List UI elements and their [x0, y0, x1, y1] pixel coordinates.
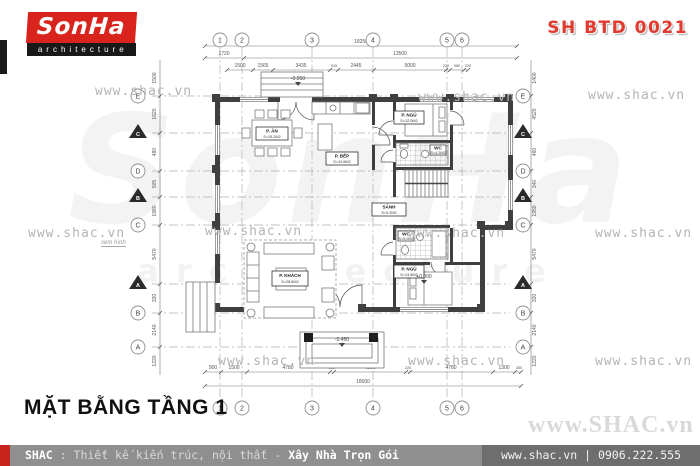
page-title: MẶT BẰNG TẦNG 1: [24, 396, 228, 420]
grid-row-bubble: A: [136, 345, 141, 352]
svg-text:S=12.0M2: S=12.0M2: [400, 119, 417, 123]
dim-top: 980: [454, 64, 460, 68]
room-label-wc-2: WC S=5.0M2: [398, 231, 414, 241]
dim-top-mid: 13500: [393, 51, 407, 57]
dim-left: 1620: [152, 108, 158, 119]
room-label-bedroom-1: P. NGỦ S=12.0M2: [394, 111, 424, 124]
dim-right: 320: [532, 294, 538, 303]
dim-bottom-total: 18000: [356, 379, 370, 385]
sonha-logo-brand: SonHa: [26, 12, 137, 43]
grid-row-bubble: D: [135, 169, 140, 176]
svg-text:P. BẾP: P. BẾP: [335, 153, 349, 159]
dim-right: 4520: [532, 108, 538, 119]
dim-left: 505: [152, 180, 158, 189]
svg-text:WC: WC: [434, 146, 442, 151]
grid-col-bubble: 5: [445, 38, 449, 45]
svg-text:P. ĂN: P. ĂN: [266, 128, 278, 134]
footer-contact: www.shac.vn | 0906.222.555: [482, 445, 700, 466]
grid-col-bubble: 3: [310, 38, 314, 45]
svg-text:S=9.2M2: S=9.2M2: [381, 211, 396, 215]
room-label-living: P. KHÁCH S=28.6M2: [272, 271, 308, 286]
svg-text:P. NGỦ: P. NGỦ: [401, 266, 417, 272]
dim-top: 515: [331, 64, 337, 68]
footer-site: www.shac.vn: [501, 448, 577, 462]
room-label-kitchen: P. BẾP S=12.6M2: [326, 152, 358, 165]
dim-top: 3435: [295, 63, 306, 69]
grid-col-bubble: 6: [460, 406, 464, 413]
sonha-logo: SonHa architecture: [27, 12, 136, 56]
room-label-hall: SẢNH S=9.2M2: [372, 203, 406, 216]
svg-text:C: C: [136, 132, 140, 138]
dim-right: 340: [532, 180, 538, 189]
grid-col-bubble: 2: [240, 406, 244, 413]
grid-col-bubble: 4: [371, 406, 375, 413]
svg-text:S=28.6M2: S=28.6M2: [281, 280, 298, 284]
svg-text:S=13.5M2: S=13.5M2: [400, 273, 417, 277]
grid-col-bubble: 3: [310, 406, 314, 413]
big-watermark: www.SHAC.vn: [528, 412, 694, 439]
svg-text:S=12.6M2: S=12.6M2: [333, 160, 350, 164]
grid-row-bubble: D: [520, 169, 525, 176]
grid-row-bubble: A: [521, 345, 526, 352]
dim-bottom: 1300: [498, 365, 509, 371]
grid-row-bubble: C: [520, 223, 525, 230]
footer-phone: 0906.222.555: [598, 448, 681, 462]
grid-row-bubble: C: [135, 223, 140, 230]
svg-text:WC: WC: [402, 232, 410, 237]
note-text: xem hình: [101, 240, 126, 247]
footer-tagline-text: Thiết kế kiến trúc, nội thất: [74, 448, 268, 462]
drawing-code: SH BTD 0021: [547, 18, 688, 38]
grid-row-bubble: B: [136, 311, 141, 318]
room-label-dining: P. ĂN S=15.2M2: [256, 127, 288, 140]
level-hall: +0.000: [416, 274, 432, 280]
grid-row-bubble: E: [136, 94, 141, 101]
fridge: [356, 103, 369, 113]
kitchen-island: [318, 124, 332, 150]
footer-divider: |: [584, 448, 591, 462]
svg-text:S=5.0M2: S=5.0M2: [398, 237, 413, 241]
dim-left: 320: [152, 294, 158, 303]
dim-top: 1500: [234, 63, 245, 69]
dim-left: 5470: [152, 248, 158, 259]
svg-text:SẢNH: SẢNH: [382, 204, 396, 210]
svg-text:S=4.2M2: S=4.2M2: [430, 151, 445, 155]
dim-top-mid: 1720: [218, 51, 229, 57]
dim-top: 1565: [257, 63, 268, 69]
dim-top: 220: [465, 64, 471, 68]
dim-bottom: 4780: [445, 365, 456, 371]
dim-left: 1980: [152, 205, 158, 216]
dim-bottom: 4780: [282, 365, 293, 371]
svg-text:S=15.2M2: S=15.2M2: [263, 135, 280, 139]
grid-row-bubble: B: [521, 311, 526, 318]
grid-col-bubble: 6: [460, 38, 464, 45]
dim-top: 220: [443, 64, 449, 68]
footer-highlight: Xây Nhà Trọn Gói: [288, 448, 399, 462]
level-entry: -0.050: [291, 76, 305, 82]
svg-text:P. KHÁCH: P. KHÁCH: [279, 272, 301, 278]
svg-text:P. NGỦ: P. NGỦ: [401, 112, 417, 118]
dim-right: 1400: [532, 72, 538, 83]
grid-col-bubble: 4: [371, 38, 375, 45]
grid-col-bubble: 5: [445, 406, 449, 413]
kitchen-counter: [312, 102, 370, 150]
dim-top: 2445: [350, 63, 361, 69]
grid-col-bubble: 2: [240, 38, 244, 45]
footer-colon: :: [60, 448, 67, 462]
room-label-wc-1: WC S=4.2M2: [430, 145, 446, 155]
svg-text:B: B: [521, 196, 525, 202]
dim-right: 460: [532, 148, 538, 157]
dim-bottom: 1500: [228, 365, 239, 371]
footer-brand: SHAC: [25, 448, 53, 462]
dim-left: 1500: [152, 72, 158, 83]
svg-text:B: B: [136, 196, 140, 202]
footer-dash: -: [274, 448, 281, 462]
footer-tagline: SHAC : Thiết kế kiến trúc, nội thất - Xâ…: [10, 445, 482, 466]
svg-text:A: A: [521, 283, 525, 289]
edge-black-block: [0, 40, 7, 74]
dim-bottom: 350: [516, 366, 522, 370]
side-steps: [186, 282, 215, 332]
dim-top: 5000: [404, 63, 415, 69]
grid-row-bubble: E: [521, 94, 526, 101]
dim-right: 1220: [532, 355, 538, 366]
dim-right: 5470: [532, 248, 538, 259]
dim-left: 480: [152, 148, 158, 157]
dim-right: 1950: [532, 205, 538, 216]
dim-left: 2140: [152, 324, 158, 335]
sonha-logo-sub: architecture: [27, 43, 136, 56]
svg-text:C: C: [521, 132, 525, 138]
dim-right: 2140: [532, 324, 538, 335]
dim-bottom: 900: [209, 365, 218, 371]
dim-bottom: 220: [405, 366, 411, 370]
footer-red-strip: [0, 445, 10, 466]
grid-col-bubble: 1: [218, 38, 222, 45]
footer-bar: SHAC : Thiết kế kiến trúc, nội thất - Xâ…: [0, 445, 700, 466]
drawing-sheet: SonHa architecture SonHa architecture SH…: [0, 0, 700, 466]
dim-left: 1220: [152, 355, 158, 366]
level-porch: -0.450: [335, 337, 349, 343]
svg-text:A: A: [136, 283, 140, 289]
